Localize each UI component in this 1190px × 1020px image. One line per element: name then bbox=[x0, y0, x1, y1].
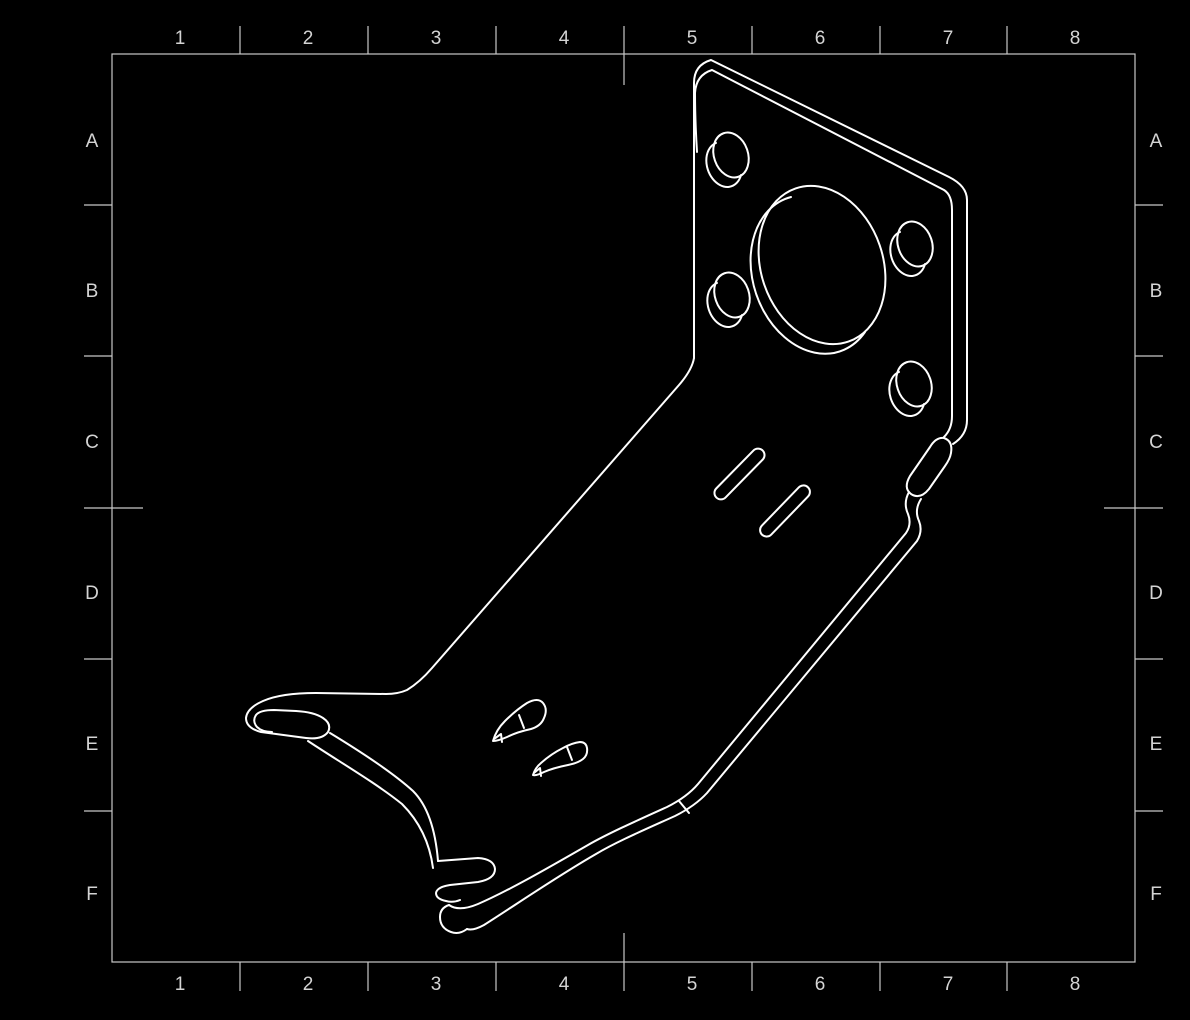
waist-edge-left bbox=[308, 741, 433, 868]
right-body-edge-lower bbox=[467, 499, 921, 930]
waist-edge-right bbox=[330, 733, 438, 861]
center-bore-hole bbox=[738, 169, 906, 362]
col-label-top-3: 3 bbox=[431, 28, 442, 49]
row-label-left-b: B bbox=[86, 281, 99, 302]
bolt-hole-bottom-right-rim bbox=[889, 372, 924, 416]
row-label-right-f: F bbox=[1150, 884, 1162, 905]
row-label-left-a: A bbox=[86, 131, 99, 152]
col-label-bottom-8: 8 bbox=[1070, 974, 1081, 995]
plate-thickness-edge bbox=[695, 70, 952, 437]
drawing-canvas[interactable]: 1 2 3 4 5 6 7 8 1 2 3 4 5 6 7 8 A B C D … bbox=[0, 0, 1190, 1020]
col-label-bottom-4: 4 bbox=[559, 974, 570, 995]
bolt-hole-bottom-left-rim bbox=[707, 283, 742, 327]
col-label-bottom-3: 3 bbox=[431, 974, 442, 995]
row-label-right-c: C bbox=[1149, 432, 1163, 453]
grid-ticks bbox=[84, 26, 1163, 991]
flange-finger-tab bbox=[436, 858, 495, 902]
web-dart-2-bend bbox=[567, 747, 572, 760]
col-label-top-7: 7 bbox=[943, 28, 954, 49]
col-label-bottom-7: 7 bbox=[943, 974, 954, 995]
bolt-hole-top-left bbox=[707, 128, 754, 183]
left-body-edge bbox=[316, 358, 694, 694]
col-label-top-2: 2 bbox=[303, 28, 314, 49]
cad-drawing-page: 1 2 3 4 5 6 7 8 1 2 3 4 5 6 7 8 A B C D … bbox=[0, 0, 1190, 1020]
col-label-bottom-1: 1 bbox=[175, 974, 186, 995]
web-slot-2 bbox=[757, 483, 812, 540]
bolt-hole-top-right-rim bbox=[890, 232, 925, 276]
bracket-isometric-view bbox=[246, 60, 967, 933]
col-label-top-8: 8 bbox=[1070, 28, 1081, 49]
row-label-right-b: B bbox=[1150, 281, 1163, 302]
bolt-hole-top-left-rim bbox=[706, 143, 741, 187]
col-label-top-5: 5 bbox=[687, 28, 698, 49]
row-label-right-e: E bbox=[1150, 734, 1163, 755]
grid-labels: 1 2 3 4 5 6 7 8 1 2 3 4 5 6 7 8 A B C D … bbox=[85, 28, 1163, 995]
flange-end-cap bbox=[440, 905, 467, 933]
bolt-hole-bottom-left bbox=[708, 268, 755, 323]
row-label-left-e: E bbox=[86, 734, 99, 755]
row-label-left-d: D bbox=[85, 583, 99, 604]
col-label-bottom-2: 2 bbox=[303, 974, 314, 995]
bolt-hole-bottom-right bbox=[890, 357, 937, 412]
web-dart-1-bend bbox=[519, 715, 524, 728]
row-label-right-a: A bbox=[1150, 131, 1163, 152]
left-hook-tab bbox=[246, 693, 329, 738]
col-label-top-4: 4 bbox=[559, 28, 570, 49]
right-body-edge-upper bbox=[449, 492, 910, 908]
sheet-frame bbox=[112, 54, 1135, 962]
web-slot-1 bbox=[712, 446, 767, 502]
row-label-left-f: F bbox=[86, 884, 98, 905]
right-edge-tab bbox=[907, 438, 952, 496]
col-label-bottom-6: 6 bbox=[815, 974, 826, 995]
plate-outer-edge bbox=[694, 60, 967, 444]
bolt-hole-top-right bbox=[891, 217, 938, 272]
row-label-right-d: D bbox=[1149, 583, 1163, 604]
center-bore-inner-rim bbox=[751, 197, 865, 354]
col-label-top-6: 6 bbox=[815, 28, 826, 49]
col-label-top-1: 1 bbox=[175, 28, 186, 49]
col-label-bottom-5: 5 bbox=[687, 974, 698, 995]
row-label-left-c: C bbox=[85, 432, 99, 453]
